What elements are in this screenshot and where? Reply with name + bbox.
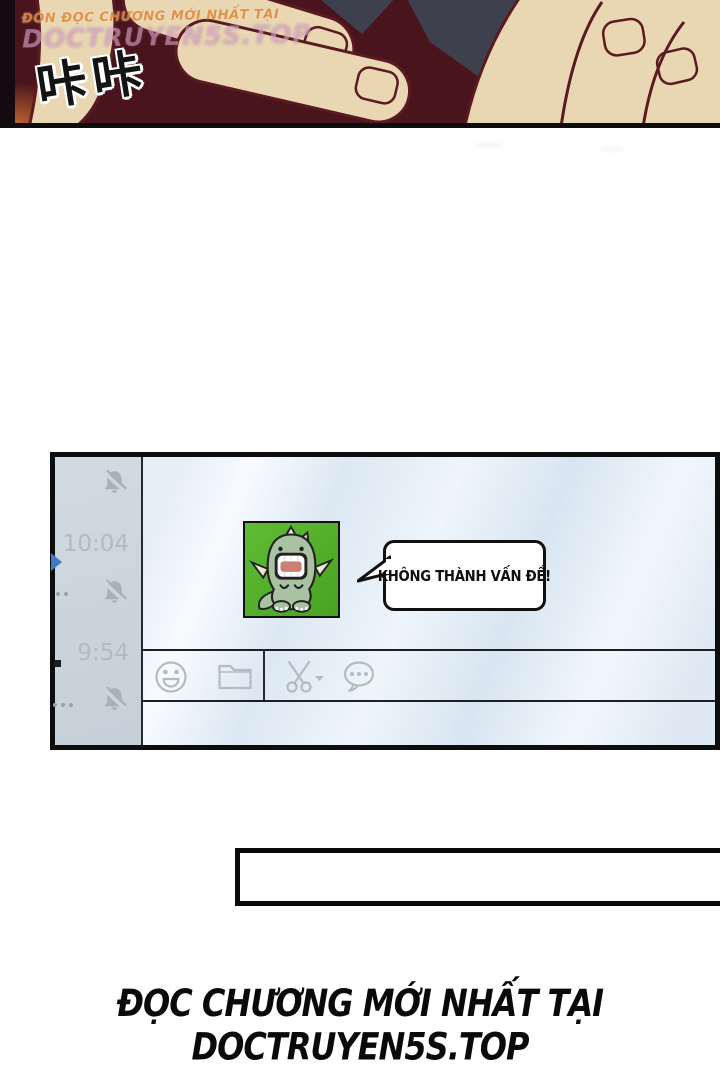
chat-toolbar xyxy=(143,649,715,702)
bell-muted-icon[interactable] xyxy=(101,468,128,495)
timestamp: 9:54 xyxy=(77,640,129,666)
ellipsis-dot xyxy=(53,703,57,707)
empty-comic-panel xyxy=(235,848,720,906)
chat-history-icon[interactable] xyxy=(341,660,379,694)
paper-smudge xyxy=(600,147,622,151)
scissors-icon[interactable] xyxy=(283,660,329,694)
contact-badge-fragment-icon xyxy=(51,553,62,571)
ellipsis-dot xyxy=(61,703,65,707)
chat-message-area: KHÔNG THÀNH VẤN ĐỀ! xyxy=(143,457,715,745)
paper-smudge xyxy=(475,143,503,148)
message-text: KHÔNG THÀNH VẤN ĐỀ! xyxy=(378,567,551,585)
list-marker-fragment xyxy=(54,660,61,667)
chat-sidebar: 10:04 9:54 xyxy=(55,457,141,745)
chat-app-window: 10:04 9:54 xyxy=(50,452,720,750)
bell-muted-icon[interactable] xyxy=(101,685,128,712)
speech-bubble: KHÔNG THÀNH VẤN ĐỀ! xyxy=(383,540,546,611)
ellipsis-dot xyxy=(56,592,60,596)
ellipsis-dot xyxy=(64,592,68,596)
manga-panel-hands: ĐÓN ĐỌC CHƯƠNG MỚI NHẤT TẠI DOCTRUYEN5S.… xyxy=(0,0,720,128)
folder-icon[interactable] xyxy=(217,663,253,691)
emoji-icon[interactable] xyxy=(153,659,189,695)
dinosaur-avatar[interactable] xyxy=(243,521,340,618)
bell-muted-icon[interactable] xyxy=(101,578,128,605)
ellipsis-dot xyxy=(69,703,73,707)
footer-site-text: ĐỌC CHƯƠNG MỚI NHẤT TẠI DOCTRUYEN5S.TOP xyxy=(11,981,709,1068)
timestamp: 10:04 xyxy=(63,531,129,557)
comic-page: ĐÓN ĐỌC CHƯƠNG MỚI NHẤT TẠI DOCTRUYEN5S.… xyxy=(0,0,720,1083)
toolbar-divider xyxy=(263,651,265,700)
